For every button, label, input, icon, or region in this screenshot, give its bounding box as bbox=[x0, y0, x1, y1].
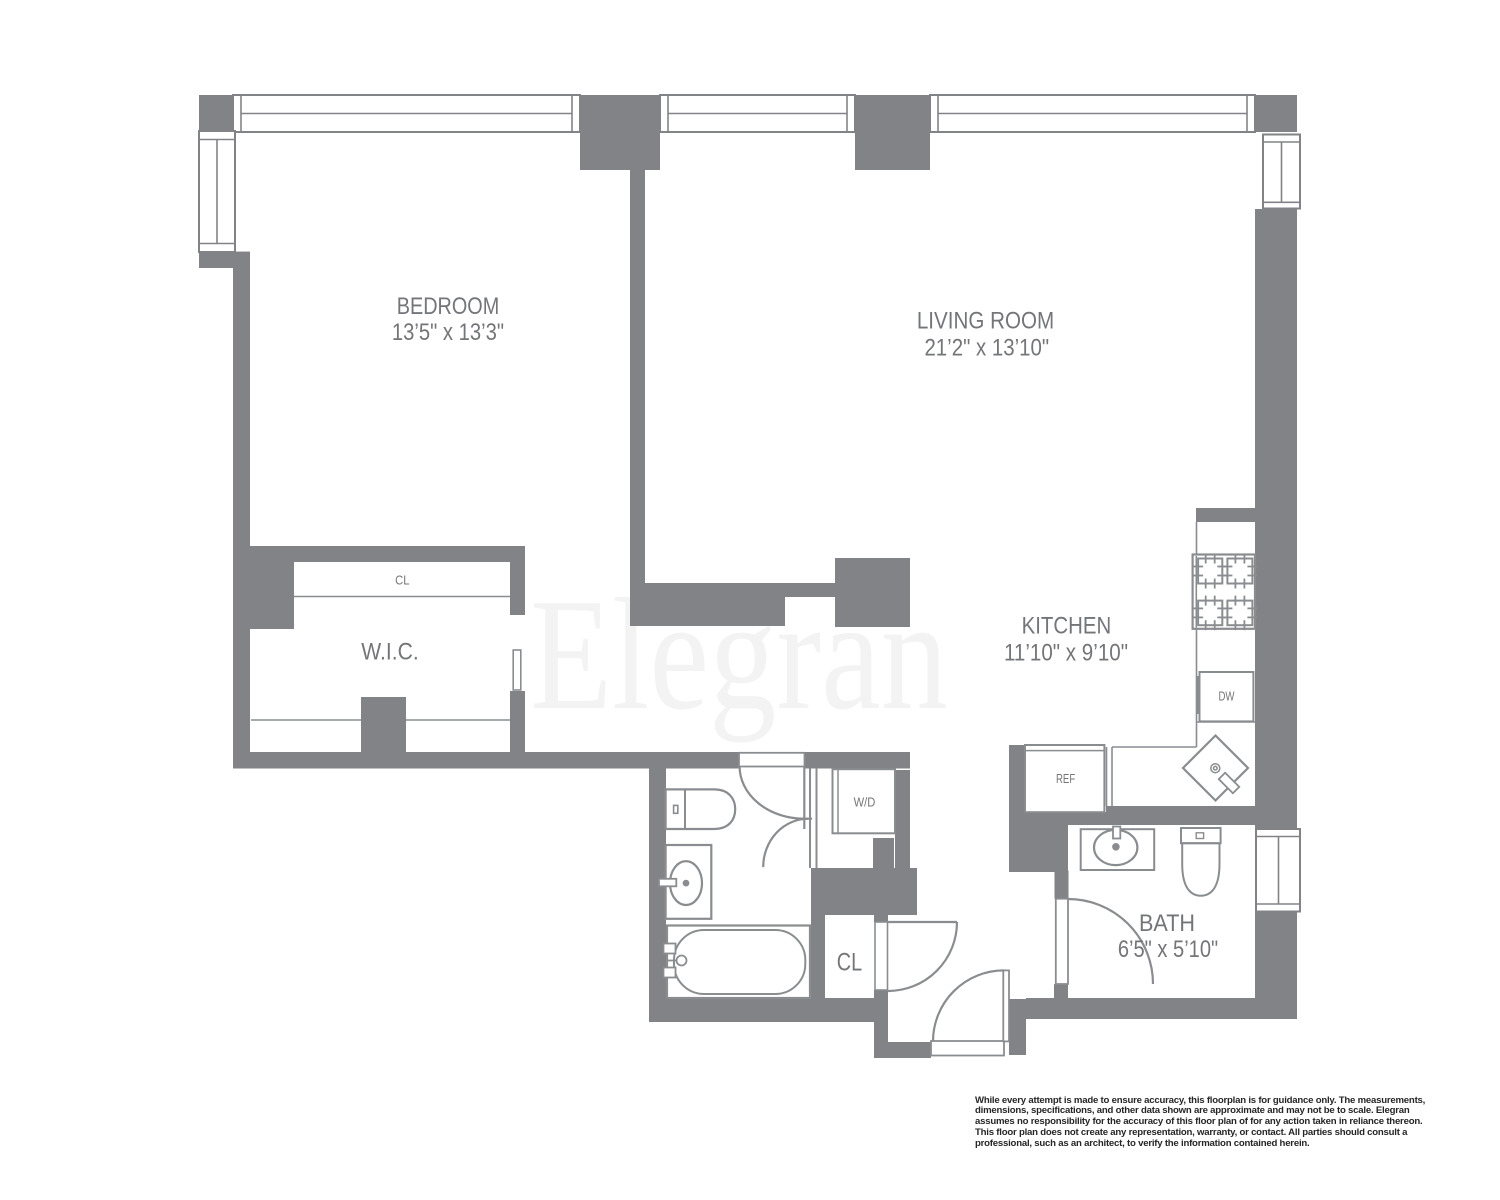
svg-text:CL: CL bbox=[395, 572, 409, 587]
svg-text:DW: DW bbox=[1219, 689, 1236, 704]
svg-text:BEDROOM: BEDROOM bbox=[397, 293, 500, 320]
svg-text:W/D: W/D bbox=[854, 795, 876, 810]
svg-text:6’5" x 5’10": 6’5" x 5’10" bbox=[1118, 936, 1218, 963]
svg-text:BATH: BATH bbox=[1139, 910, 1195, 937]
svg-text:W.I.C.: W.I.C. bbox=[361, 639, 419, 666]
svg-text:REF: REF bbox=[1056, 771, 1075, 786]
svg-text:LIVING ROOM: LIVING ROOM bbox=[917, 308, 1054, 335]
svg-text:11’10" x 9’10": 11’10" x 9’10" bbox=[1004, 639, 1128, 666]
svg-text:13’5" x 13’3": 13’5" x 13’3" bbox=[392, 319, 504, 346]
svg-text:CL: CL bbox=[837, 948, 862, 976]
svg-text:KITCHEN: KITCHEN bbox=[1022, 613, 1112, 640]
svg-text:21’2" x 13’10": 21’2" x 13’10" bbox=[924, 334, 1049, 361]
